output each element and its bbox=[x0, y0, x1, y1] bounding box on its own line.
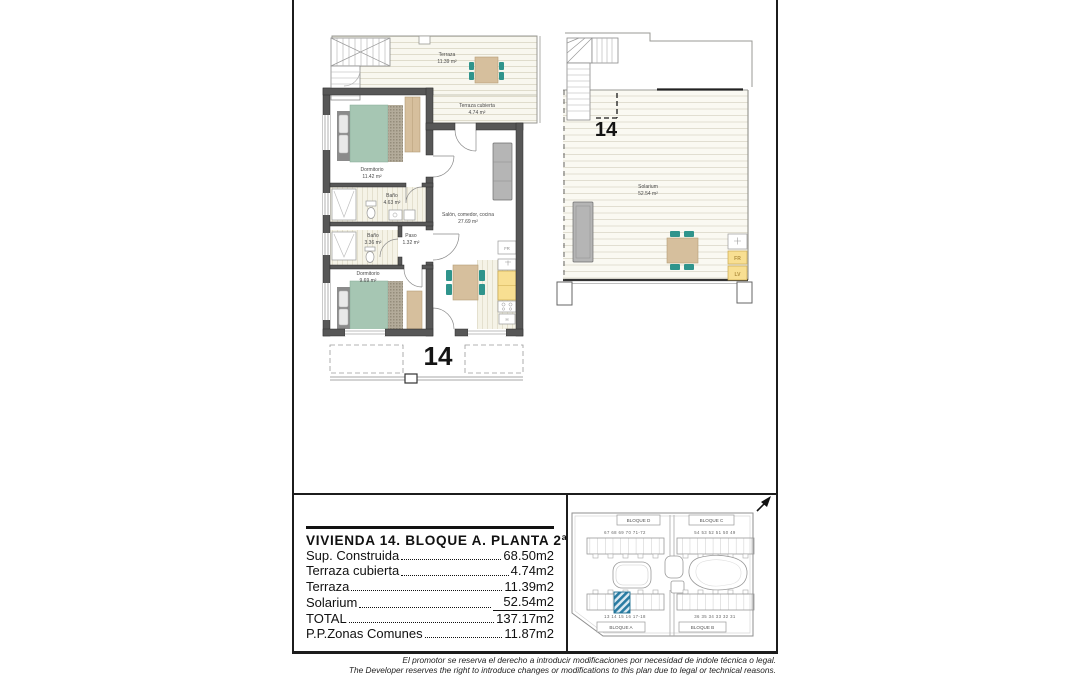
dormitorio1-label: Dormitorio bbox=[360, 167, 383, 173]
row-value: 11.39m2 bbox=[504, 579, 554, 594]
paso-label: Paso bbox=[405, 233, 417, 239]
kitchen-sink bbox=[498, 259, 516, 270]
bano2-label: Baño bbox=[367, 233, 379, 239]
salon-area: 27.69 m² bbox=[458, 219, 478, 225]
surface-table: VIVIENDA 14. BLOQUE A. PLANTA 2ª Sup. Co… bbox=[306, 493, 554, 641]
row-label: P.P.Zonas Comunes bbox=[306, 626, 423, 641]
row-label: Terraza bbox=[306, 579, 349, 594]
block-b-label: BLOQUE B bbox=[691, 625, 715, 630]
site-plan: BLOQUE D BLOQUE C 67 68 69 70 71-72 54 5… bbox=[567, 495, 776, 653]
block-a-label: BLOQUE A bbox=[609, 625, 633, 630]
disclaimer-en: The Developer reserves the right to intr… bbox=[349, 666, 776, 676]
wardrobe-2 bbox=[407, 291, 422, 329]
block-b-numbers: 36 35 34 33 32 31 bbox=[694, 614, 736, 619]
table-row: Sup. Construida 68.50m2 bbox=[306, 548, 554, 563]
block-d-label: BLOQUE D bbox=[627, 518, 651, 523]
row-label: Terraza cubierta bbox=[306, 563, 399, 578]
terrace-notch bbox=[419, 36, 430, 44]
block-d-numbers: 67 68 69 70 71-72 bbox=[604, 530, 646, 535]
solarium-fridge-label: FR bbox=[734, 256, 741, 262]
table-row: Terraza 11.39m2 bbox=[306, 579, 554, 594]
leader-dots bbox=[401, 559, 501, 560]
boundary-post bbox=[405, 374, 417, 383]
solarium-label: Solarium bbox=[638, 184, 658, 190]
leader-dots bbox=[401, 575, 508, 576]
row-label: TOTAL bbox=[306, 611, 347, 626]
plan-title: VIVIENDA 14. BLOQUE A. PLANTA 2ª bbox=[306, 533, 554, 548]
highlighted-unit-marker bbox=[614, 592, 630, 613]
plan-sheet: FR H bbox=[0, 0, 1070, 682]
north-arrow bbox=[757, 496, 771, 511]
dormitorio1-area: 11.42 m² bbox=[362, 174, 382, 180]
row-value-underlined: 52.54m2 bbox=[493, 594, 554, 610]
leader-dots bbox=[425, 637, 503, 638]
floor-plan-solarium: 14 FR LV Solarium 52.54 m² bbox=[552, 25, 787, 320]
oven-label: H bbox=[505, 317, 508, 322]
solarium-dishwasher-label: LV bbox=[734, 272, 741, 278]
dormitorio2-area: 9.69 m² bbox=[360, 278, 377, 284]
solarium-kitchenette: FR LV bbox=[728, 234, 747, 280]
kitchen-appliances: FR H bbox=[498, 241, 516, 324]
row-label: Sup. Construida bbox=[306, 548, 399, 563]
table-row: Solarium 52.54m2 bbox=[306, 594, 554, 610]
terraza-cubierta-area: 4.74 m² bbox=[469, 110, 486, 116]
solarium-area: 52.54 m² bbox=[638, 191, 658, 197]
stove bbox=[498, 301, 516, 312]
salon-label: Salón, comedor, cocina bbox=[442, 212, 494, 218]
bano1-area: 4.63 m² bbox=[384, 200, 401, 206]
terraza-cubierta-label: Terraza cubierta bbox=[459, 103, 495, 109]
terraza-area: 11.39 m² bbox=[437, 59, 457, 65]
solarium-sofa bbox=[573, 202, 593, 262]
bano2-area: 3.36 m² bbox=[365, 240, 382, 246]
disclaimer: El promotor se reserva el derecho a intr… bbox=[349, 656, 776, 676]
fridge-label: FR bbox=[504, 246, 510, 251]
row-label: Solarium bbox=[306, 595, 357, 610]
sofa bbox=[493, 143, 512, 200]
leader-dots bbox=[351, 590, 502, 591]
leader-dots bbox=[359, 607, 491, 608]
column-right bbox=[737, 282, 752, 303]
terraza-label: Terraza bbox=[439, 52, 456, 58]
boundary-line bbox=[330, 377, 523, 380]
block-c-label: BLOQUE C bbox=[700, 518, 724, 523]
column-left bbox=[557, 282, 572, 305]
row-value: 4.74m2 bbox=[511, 563, 554, 578]
unit-number-main: 14 bbox=[424, 341, 453, 371]
dormitorio2-label: Dormitorio bbox=[356, 271, 379, 277]
block-c-numbers: 54 53 52 51 50 49 bbox=[694, 530, 736, 535]
block-a-numbers: 13 14 15 16 17-18 bbox=[604, 614, 646, 619]
leader-dots bbox=[349, 622, 494, 623]
bano1-label: Baño bbox=[386, 193, 398, 199]
unit-number-solarium: 14 bbox=[595, 119, 618, 141]
bed-1 bbox=[337, 105, 403, 162]
row-value: 137.17m2 bbox=[496, 611, 554, 626]
floor-plan-main: FR H bbox=[288, 25, 548, 395]
bed-2 bbox=[337, 281, 403, 333]
paso-area: 1.32 m² bbox=[403, 240, 420, 246]
table-row: P.P.Zonas Comunes 11.87m2 bbox=[306, 626, 554, 641]
title-rule bbox=[306, 526, 554, 529]
table-row: Terraza cubierta 4.74m2 bbox=[306, 563, 554, 578]
row-value: 11.87m2 bbox=[504, 626, 554, 641]
table-row: TOTAL 137.17m2 bbox=[306, 611, 554, 626]
row-value: 68.50m2 bbox=[503, 548, 554, 563]
